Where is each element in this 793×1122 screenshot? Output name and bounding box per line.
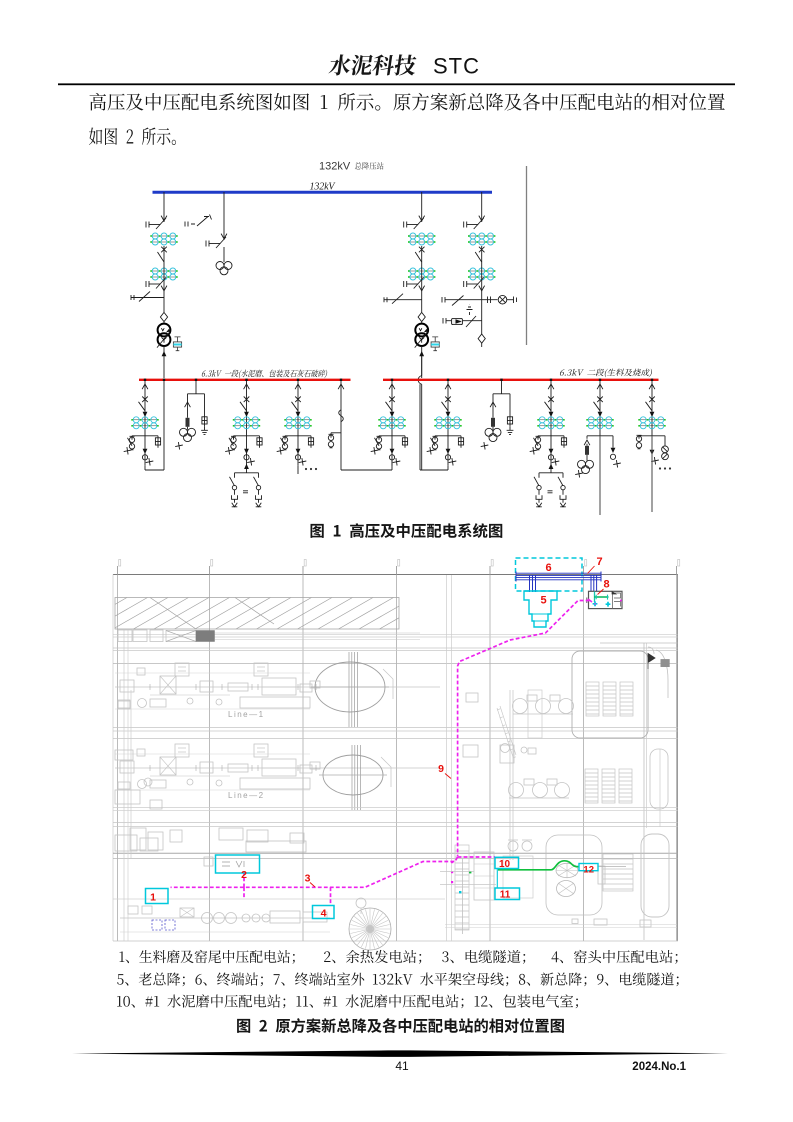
svg-text:41: 41	[395, 1059, 409, 1073]
svg-text:5: 5	[540, 595, 546, 607]
svg-text:9: 9	[438, 763, 444, 775]
svg-text:Line—1: Line—1	[228, 710, 265, 719]
svg-text:6: 6	[545, 562, 551, 574]
svg-text:11: 11	[500, 889, 511, 900]
svg-text:132kV: 132kV	[319, 161, 351, 173]
svg-text:1: 1	[150, 892, 156, 904]
svg-text:Line—2: Line—2	[228, 791, 265, 800]
svg-text:10: 10	[499, 859, 511, 870]
svg-text:3: 3	[305, 873, 311, 885]
svg-text:2: 2	[241, 869, 247, 881]
svg-text:4: 4	[321, 908, 327, 920]
svg-text:7: 7	[596, 556, 602, 568]
svg-text:132kV: 132kV	[310, 181, 337, 192]
svg-text:2024.No.1: 2024.No.1	[632, 1061, 686, 1073]
svg-text:8: 8	[603, 579, 609, 591]
svg-text:STC: STC	[433, 54, 480, 79]
svg-text:12: 12	[583, 865, 594, 876]
